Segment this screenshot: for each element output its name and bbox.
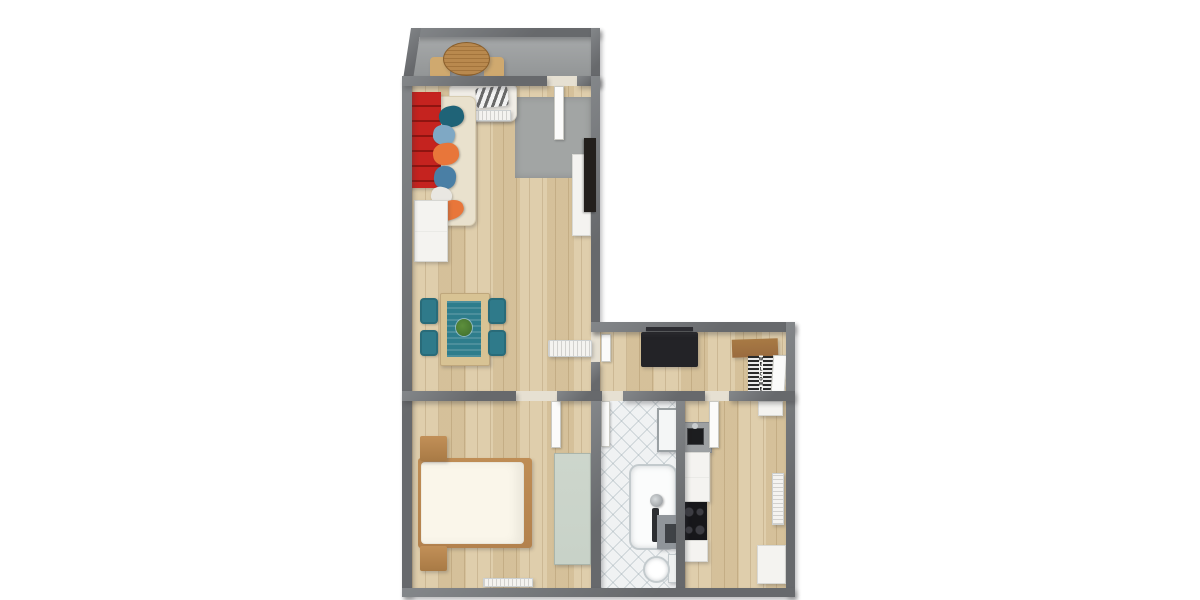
- wall-balcony-separator-a: [402, 76, 547, 86]
- plant-centerpiece: [456, 319, 472, 336]
- kitchen-top-right-cabinet: [758, 401, 783, 416]
- wall-middle-d: [729, 391, 795, 401]
- floor-plan: WELCOME: [0, 0, 1200, 600]
- cabinet-under-cooktop: [684, 540, 708, 562]
- bath-caddy-inner: [665, 524, 676, 543]
- wall-middle-a: [402, 391, 516, 401]
- toilet-bowl: [643, 556, 670, 583]
- bedroom-door-leaf: [551, 401, 561, 448]
- kitchen-sink: [687, 428, 704, 445]
- dining-chair-top-right: [488, 298, 506, 324]
- wall-bedroom-bathroom: [591, 401, 601, 588]
- tv: [584, 138, 596, 212]
- black-sideboard: [641, 332, 698, 367]
- kitchen-door-leaf: [709, 401, 719, 448]
- wall-shelf-brown: [732, 338, 779, 358]
- wall-middle-b: [557, 391, 602, 401]
- striped-blanket: [475, 86, 509, 109]
- wall-bottom-outer: [402, 588, 795, 597]
- coat-rack-rail: [646, 327, 693, 331]
- kitchen-counter-white: [684, 452, 710, 502]
- kitchen-faucet: [692, 423, 698, 429]
- bathroom-door-sill: [602, 391, 623, 401]
- wall-hallway-top: [591, 322, 795, 332]
- wardrobe: [554, 453, 591, 565]
- kitchen-radiator: [772, 473, 784, 525]
- dining-chair-bottom-right: [488, 330, 506, 356]
- wall-balcony-top: [411, 28, 600, 37]
- dining-chair-bottom-left: [420, 330, 438, 356]
- wall-living-right-b: [591, 362, 600, 391]
- wall-left-outer: [402, 76, 412, 597]
- bedroom-door-sill: [516, 391, 557, 401]
- hall-door-leaf: [601, 334, 611, 362]
- dining-chair-top-left: [420, 298, 438, 324]
- bathroom-door-leaf: [601, 401, 610, 447]
- bath-caddy: [657, 515, 678, 549]
- round-patio-table: [443, 42, 490, 76]
- wall-middle-c: [623, 391, 705, 401]
- nightstand-top: [420, 436, 447, 461]
- bed-mattress: [421, 462, 524, 544]
- nightstand-bottom: [420, 546, 447, 571]
- kitchen-corner-cabinet: [757, 545, 786, 584]
- bedroom-radiator: [483, 578, 533, 587]
- welcome-mat-text: WELCOME: [759, 355, 763, 392]
- balcony-door-sill: [547, 76, 577, 86]
- kitchen-door-sill: [705, 391, 729, 401]
- white-dresser: [414, 200, 448, 262]
- entrance-door-leaf: [771, 355, 788, 392]
- balcony-door-leaf: [554, 86, 564, 140]
- hall-door-sill: [591, 332, 600, 362]
- faucet-knob: [650, 494, 663, 507]
- wall-bathroom-kitchen: [676, 401, 685, 588]
- wall-right-outer: [786, 322, 795, 597]
- welcome-mat: WELCOME: [748, 356, 773, 391]
- living-room-radiator: [548, 340, 592, 357]
